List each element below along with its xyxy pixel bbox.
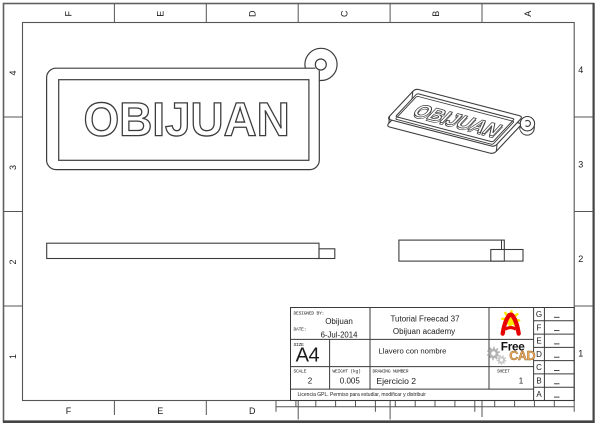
svg-text:F: F	[64, 11, 74, 17]
svg-text:DATE:: DATE:	[294, 327, 307, 333]
svg-text:0.005: 0.005	[340, 377, 361, 386]
svg-text:D: D	[247, 10, 257, 17]
svg-text:F: F	[66, 406, 72, 416]
svg-text:A4: A4	[296, 345, 320, 367]
svg-text:F: F	[537, 323, 542, 332]
svg-text:WEIGHT (kg): WEIGHT (kg)	[333, 369, 361, 375]
svg-text:6-Jul-2014: 6-Jul-2014	[321, 330, 359, 339]
svg-text:2: 2	[8, 259, 18, 264]
svg-text:B: B	[431, 11, 441, 17]
svg-text:2: 2	[578, 254, 583, 264]
svg-text:G: G	[536, 310, 542, 319]
svg-text:D: D	[249, 406, 256, 416]
svg-text:4: 4	[8, 70, 18, 75]
svg-text:B: B	[536, 377, 541, 386]
svg-text:3: 3	[578, 159, 583, 169]
svg-text:E: E	[157, 406, 163, 416]
svg-text:SCALE: SCALE	[294, 369, 307, 375]
svg-text:Llavero con nombre: Llavero con nombre	[379, 347, 447, 356]
svg-text:C: C	[339, 10, 349, 17]
svg-text:SHEET: SHEET	[497, 369, 510, 375]
svg-text:A: A	[523, 11, 533, 17]
svg-text:4: 4	[578, 65, 583, 75]
svg-text:Obijuan academy: Obijuan academy	[393, 327, 455, 336]
svg-text:3: 3	[8, 165, 18, 170]
svg-text:D: D	[536, 350, 542, 359]
svg-text:1: 1	[578, 348, 583, 358]
svg-text:Tutorial Freecad 37: Tutorial Freecad 37	[390, 314, 460, 323]
svg-text:DRAWING NUMBER: DRAWING NUMBER	[373, 369, 409, 375]
svg-text:E: E	[536, 337, 541, 346]
svg-text:CAD: CAD	[509, 349, 535, 363]
svg-text:1: 1	[519, 377, 524, 386]
svg-text:Obijuan: Obijuan	[325, 317, 353, 326]
svg-text:2: 2	[308, 377, 313, 386]
svg-text:Ejercicio 2: Ejercicio 2	[376, 376, 416, 386]
svg-text:Licencia GPL. Permiso para est: Licencia GPL. Permiso para estudiar, mod…	[298, 392, 427, 398]
svg-text:DESIGNED BY:: DESIGNED BY:	[294, 311, 325, 317]
svg-text:C: C	[536, 363, 542, 372]
svg-text:A: A	[536, 390, 542, 399]
svg-text:E: E	[156, 11, 166, 17]
svg-text:1: 1	[8, 354, 18, 359]
